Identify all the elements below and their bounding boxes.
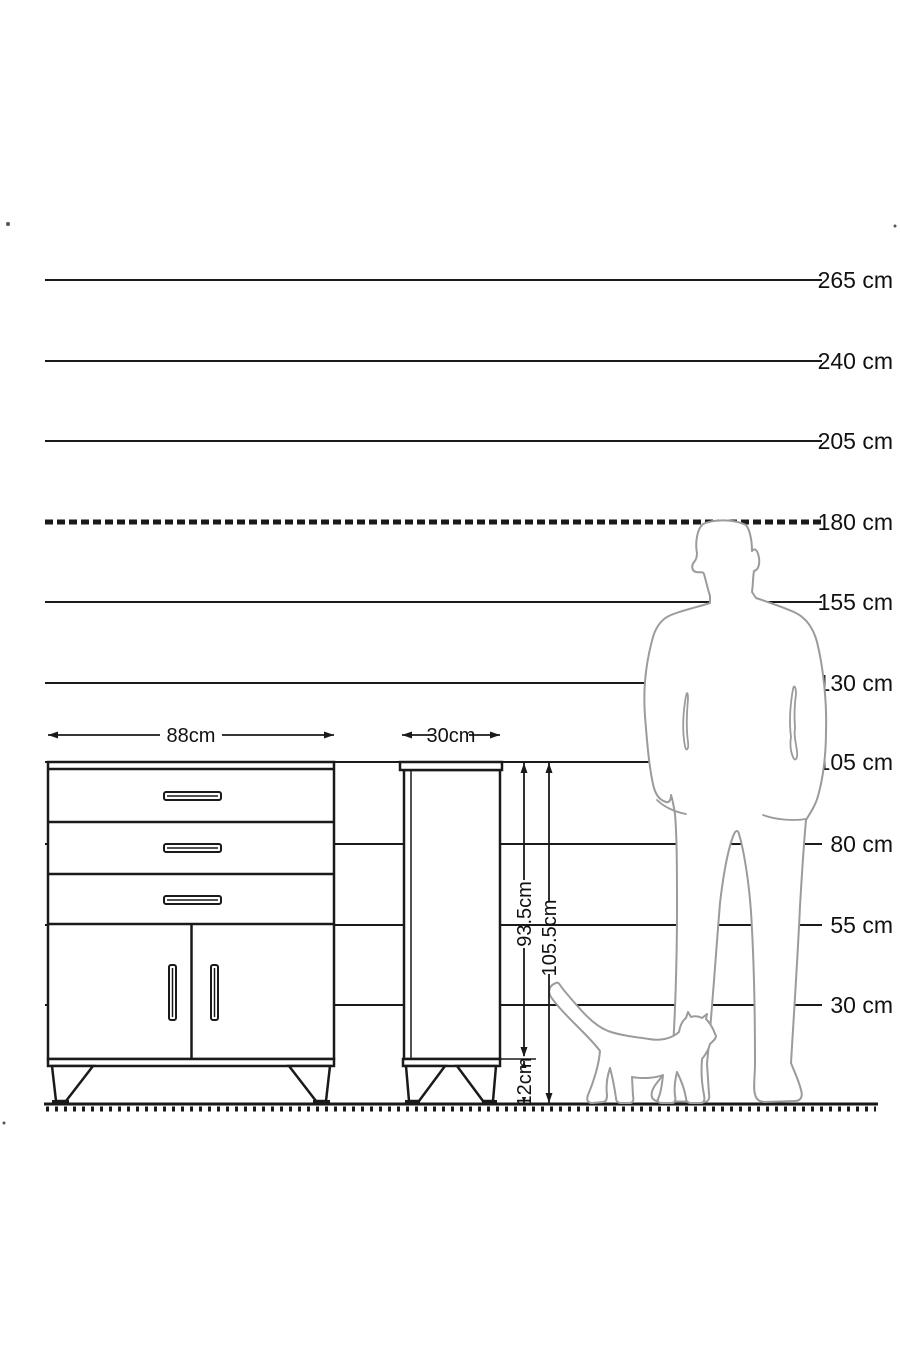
cabinet-foot-left: [405, 1100, 420, 1105]
dresser: [48, 762, 334, 1105]
cabinet-body: [404, 770, 500, 1059]
scale-label-205: 205 cm: [818, 428, 893, 454]
narrow-cabinet: [400, 762, 502, 1105]
drawer-handle-3: [164, 896, 221, 904]
scale-label-265: 265 cm: [818, 267, 893, 293]
scale-label-155: 155 cm: [818, 589, 893, 615]
furniture-height-diagram: 265 cm240 cm205 cm180 cm155 cm130 cm105 …: [0, 0, 900, 1350]
leg-height-label: 12cm: [514, 1058, 536, 1107]
scale-label-55: 55 cm: [830, 912, 893, 938]
cabinet-top-cap: [400, 762, 502, 770]
dresser-foot-left: [52, 1100, 69, 1105]
scale-label-80: 80 cm: [830, 831, 893, 857]
scale-label-130: 130 cm: [818, 670, 893, 696]
drawer-handle-1: [164, 792, 221, 800]
cabinet-foot-right: [482, 1100, 497, 1105]
scale-label-180: 180 cm: [818, 509, 893, 535]
body-height-label: 93.5cm: [514, 881, 536, 947]
speck: [894, 225, 897, 228]
drawer-handle-2: [164, 844, 221, 852]
diagram-canvas: 265 cm240 cm205 cm180 cm155 cm130 cm105 …: [0, 0, 900, 1350]
scale-label-240: 240 cm: [818, 348, 893, 374]
speck: [3, 1122, 6, 1125]
dresser-width-label: 88cm: [167, 725, 216, 747]
dresser-foot-right: [313, 1100, 330, 1105]
door-handle-right: [211, 965, 218, 1020]
total-height-label: 105.5cm: [539, 900, 561, 977]
scale-label-30: 30 cm: [830, 992, 893, 1018]
speck: [6, 222, 10, 226]
door-handle-left: [169, 965, 176, 1020]
cabinet-width-label: 30cm: [427, 725, 476, 747]
scale-label-105: 105 cm: [818, 749, 893, 775]
